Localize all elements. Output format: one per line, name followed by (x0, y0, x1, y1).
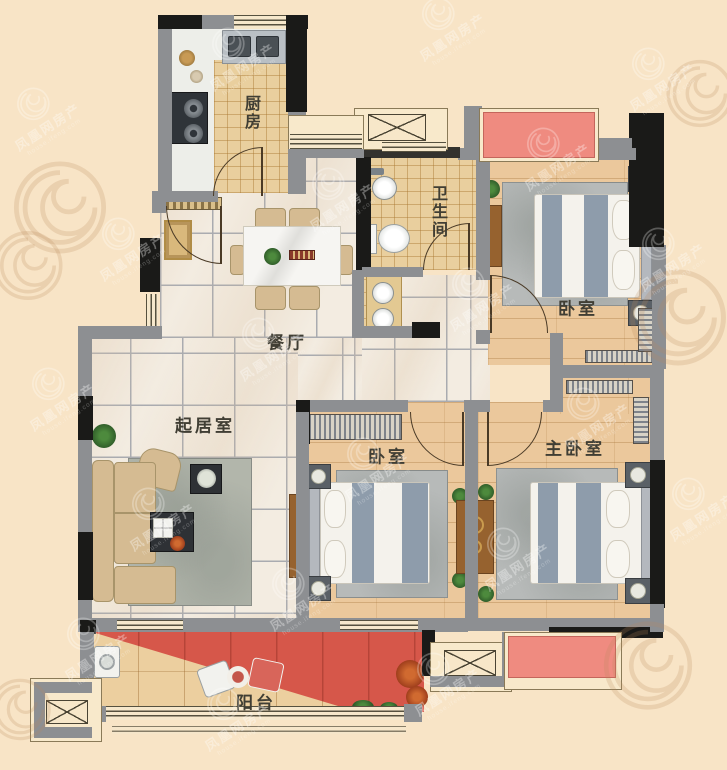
wall (476, 330, 490, 344)
side-table-bowl (197, 469, 216, 488)
room-label-bedroom-north: 卧室 (558, 295, 598, 320)
wardrobe (566, 380, 633, 394)
wall (550, 333, 563, 412)
room-label-bathroom: 卫生间 (425, 185, 449, 239)
vanity-basin-1 (372, 282, 394, 304)
wall (650, 377, 664, 463)
bed-runner (584, 195, 608, 297)
flowerbed-top-red (483, 112, 595, 158)
room-label-dining: 餐厅 (267, 329, 307, 354)
wall (78, 618, 310, 632)
living-plant (92, 424, 116, 448)
background-swirl-icon (0, 678, 52, 747)
nightstand-lamp (311, 581, 326, 596)
swirl-logo-icon (628, 268, 727, 368)
dining-chair (289, 286, 320, 310)
watermark-domain: house.ifeng.com (216, 717, 272, 757)
kitchen-sink-basin-right (256, 36, 279, 57)
wall (286, 15, 307, 112)
kitchen-bowl-2 (190, 70, 203, 83)
plant (478, 586, 494, 602)
bed-runner (352, 483, 374, 583)
pillow (324, 540, 346, 578)
plant (478, 484, 494, 500)
bedroom-window (340, 620, 418, 630)
balcony-plant (396, 660, 424, 688)
watermark-brand: 凤凰网房产 (416, 8, 489, 65)
ac-unit-box (368, 114, 426, 141)
table-plant (264, 248, 281, 265)
wall (352, 326, 412, 338)
nightstand-lamp (630, 467, 646, 483)
swirl-logo-icon (664, 471, 711, 518)
wardrobe (308, 414, 402, 440)
watermark-domain: house.ifeng.com (26, 117, 82, 157)
room-label-living: 起居室 (175, 412, 235, 437)
bed-runner (542, 195, 562, 297)
wardrobe (633, 397, 649, 444)
bath-washbasin (372, 176, 397, 200)
table-tray (289, 250, 315, 260)
wall (464, 400, 490, 412)
wall (476, 148, 490, 280)
room-label-balcony: 阳台 (236, 689, 276, 714)
watermark-brand: 凤凰网房产 (666, 488, 727, 545)
swirl-logo-icon (0, 678, 52, 742)
wall (288, 149, 364, 158)
sofa-back (92, 460, 114, 602)
watermark-brand: 凤凰网房产 (11, 98, 84, 155)
bedroom-middle-headboard (309, 480, 320, 586)
nightstand-lamp (311, 469, 326, 484)
wall (594, 138, 632, 150)
dining-chair (255, 286, 286, 310)
wall (650, 460, 665, 608)
wall (158, 15, 172, 193)
background-swirl-icon (602, 620, 694, 717)
ac-unit-box (46, 700, 88, 724)
stove-burner-1 (184, 99, 203, 118)
room-label-kitchen: 厨房 (238, 95, 262, 131)
stove-burner-2 (184, 124, 203, 143)
wall (158, 15, 202, 29)
nightstand-lamp (630, 583, 646, 599)
kitchen-sink-basin-left (228, 36, 251, 57)
swirl-logo-icon (414, 0, 461, 38)
pillow (606, 540, 630, 578)
swirl-logo-icon (665, 59, 727, 129)
bed-runner (538, 483, 558, 583)
background-swirl-icon (665, 59, 727, 134)
swirl-logo-icon (24, 361, 71, 408)
wall (404, 704, 422, 722)
wall (78, 396, 93, 440)
wall (78, 532, 93, 600)
wall (140, 238, 160, 292)
toilet-bowl (378, 224, 410, 253)
background-swirl-icon (628, 268, 727, 373)
wall (465, 412, 478, 618)
side-window (146, 294, 158, 328)
bed-runner (576, 483, 601, 583)
wall (362, 267, 423, 277)
wall (629, 113, 664, 247)
swirl-logo-icon (0, 230, 64, 302)
watermark-domain: house.ifeng.com (681, 507, 727, 547)
wall (152, 191, 166, 213)
dining-window-lines (290, 134, 362, 149)
wall (202, 15, 234, 29)
kitchen-bowl-1 (179, 50, 195, 66)
room-label-bedroom-middle: 卧室 (368, 443, 408, 468)
watermark: 凤凰网房产house.ifeng.com (397, 0, 493, 71)
pillow (324, 490, 346, 528)
background-swirl-icon (0, 230, 64, 307)
bedroom-north-dresser (489, 205, 502, 267)
washer-drum (99, 654, 115, 670)
living-window (117, 620, 183, 630)
wall (356, 157, 371, 270)
swirl-logo-icon (602, 620, 694, 712)
sofa-chaise (114, 566, 176, 604)
bed-runner (402, 483, 428, 583)
floorplan: 厨房 卫生间 卧室 餐厅 起居室 卧室 主卧室 阳台 凤凰网房产house.if… (0, 0, 727, 770)
wall (412, 322, 440, 338)
flowerbed-bottom-red (508, 636, 616, 678)
wall (296, 412, 309, 618)
pillow (606, 490, 630, 528)
wall (296, 400, 408, 412)
balcony-table (227, 666, 249, 688)
swirl-logo-icon (9, 81, 56, 128)
kitchen-window (234, 15, 288, 29)
wall (158, 191, 218, 202)
balcony-outline (112, 726, 406, 734)
coffee-table-tray (153, 518, 173, 538)
watermark: 凤凰网房产house.ifeng.com (0, 69, 88, 160)
watermark-domain: house.ifeng.com (431, 27, 487, 67)
ac-unit-box (444, 650, 496, 676)
vent-lines (382, 142, 446, 152)
coffee-table-flowers (170, 536, 185, 551)
room-label-master: 主卧室 (545, 435, 605, 460)
